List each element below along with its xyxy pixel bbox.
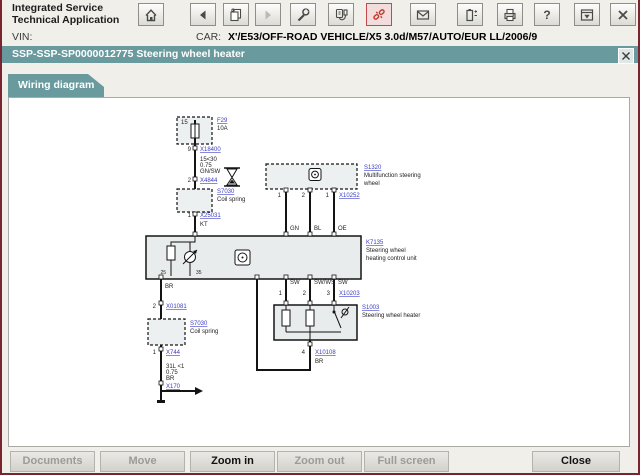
battery-icon: [462, 7, 478, 23]
workshop-tools-button[interactable]: [290, 3, 316, 26]
diagnostic-connection-button[interactable]: [328, 3, 354, 26]
zoom-out-button: Zoom out: [277, 451, 362, 472]
wire-color: GN/SW: [200, 169, 221, 175]
help-button[interactable]: ?: [534, 3, 560, 26]
pin-number: 4: [302, 350, 306, 356]
connection-broken-button[interactable]: [366, 3, 392, 26]
documents-copy-button[interactable]: [223, 3, 249, 26]
mail-icon: [415, 7, 431, 23]
control-unit-label-2: heating control unit: [366, 256, 417, 262]
heater-label: Steering wheel heater: [362, 313, 420, 319]
heater-box: [274, 305, 357, 340]
diagnostic-plug-icon: [333, 7, 349, 23]
mail-button[interactable]: [410, 3, 436, 26]
mfl-label-2: wheel: [363, 181, 380, 187]
vin-label: VIN:: [12, 31, 32, 43]
pin-number: 2: [153, 304, 157, 310]
document-close-button[interactable]: [618, 48, 634, 64]
pin-number: 1: [153, 350, 157, 356]
coil-spring-upper-link[interactable]: S7030: [217, 189, 235, 195]
mfl-link[interactable]: S1320: [364, 165, 382, 171]
wire-label: OE: [338, 226, 347, 232]
pin-number: 1: [278, 193, 282, 199]
connector-link[interactable]: X744: [166, 350, 181, 356]
app-title-line2: Technical Application: [12, 14, 119, 26]
coil-spring-lower-label: Coil spring: [190, 329, 218, 335]
steering-wheel-icon: [309, 169, 321, 181]
pin-number: 2: [188, 178, 192, 184]
car-label: CAR:: [196, 31, 221, 43]
forward-button[interactable]: [255, 3, 281, 26]
close-icon: [621, 51, 631, 61]
fuse-pin-top: 15: [181, 120, 188, 126]
connector-link[interactable]: X10108: [315, 350, 336, 356]
connector-link[interactable]: X4844: [200, 178, 218, 184]
close-app-button[interactable]: [610, 3, 636, 26]
coil-spring-lower-box: [148, 319, 185, 345]
wire-label: BR: [315, 359, 324, 365]
internal-pin: 25: [160, 270, 166, 276]
app-title-line1: Integrated Service: [12, 2, 103, 14]
control-unit-label-1: Steering wheel: [366, 248, 406, 254]
tab-label: Wiring diagram: [18, 79, 94, 91]
close-button[interactable]: Close: [532, 451, 620, 472]
mfl-label-1: Multifunction steering: [364, 173, 421, 179]
wire-label: SW/WS: [314, 280, 335, 286]
close-icon: [615, 7, 631, 23]
home-button[interactable]: [138, 3, 164, 26]
coil-spring-lower-link[interactable]: S7030: [190, 321, 208, 327]
zoom-in-button[interactable]: Zoom in: [190, 451, 275, 472]
connector-link[interactable]: X25031: [200, 213, 221, 219]
battery-status-button[interactable]: [457, 3, 483, 26]
connector-link[interactable]: X01081: [166, 304, 187, 310]
hourglass-cursor: [224, 168, 240, 186]
app-title: Integrated ServiceTechnical Application: [12, 3, 119, 26]
wire-label: SW: [338, 280, 348, 286]
connector-link[interactable]: X10252: [339, 193, 360, 199]
fuse-symbol: [191, 124, 199, 138]
tab-wiring-diagram[interactable]: Wiring diagram: [8, 74, 104, 97]
documents-button: Documents: [10, 451, 95, 472]
coil-spring-upper-box: [177, 189, 212, 212]
wire-label: SW: [290, 280, 300, 286]
full-screen-button: Full screen: [364, 451, 449, 472]
back-icon: [195, 7, 211, 23]
window-down-icon: [579, 7, 595, 23]
pin-number: 3: [327, 291, 331, 297]
pin-number: 1: [326, 193, 330, 199]
wrench-icon: [295, 7, 311, 23]
ground-connector-link[interactable]: X170: [166, 384, 181, 390]
connector-link[interactable]: X10203: [339, 291, 360, 297]
connector-link[interactable]: X18400: [200, 147, 221, 153]
pin-number: 2: [302, 193, 306, 199]
control-unit-box: [146, 236, 361, 279]
coil-spring-upper-label: Coil spring: [217, 197, 245, 203]
heater-link[interactable]: S1003: [362, 305, 380, 311]
wire-label: KT: [200, 222, 208, 228]
move-button: Move: [100, 451, 185, 472]
help-icon: ?: [543, 8, 550, 22]
broken-connection-icon: [371, 7, 387, 23]
document-title-bar: SSP-SSP-SP0000012775 Steering wheel heat…: [2, 46, 638, 63]
pin-number: 2: [303, 291, 307, 297]
internal-pin: 35: [196, 270, 202, 276]
control-unit-link[interactable]: K7135: [366, 240, 384, 246]
print-button[interactable]: [497, 3, 523, 26]
copy-documents-icon: [228, 7, 244, 23]
fuse-pin-out: 9: [188, 147, 192, 153]
wire-label: BR: [165, 284, 174, 290]
pin-number: 1: [188, 213, 192, 219]
car-value: X'/E53/OFF-ROAD VEHICLE/X5 3.0d/M57/AUTO…: [228, 31, 537, 43]
wire-color: BR: [166, 376, 175, 382]
fuse-code-link[interactable]: F29: [217, 118, 228, 124]
document-title: SSP-SSP-SP0000012775 Steering wheel heat…: [12, 48, 245, 60]
diagram-panel: 15 F29 10A 9 X18400 15<30 0.75 GN/SW 2 X…: [8, 97, 630, 447]
forward-icon: [260, 7, 276, 23]
back-button[interactable]: [190, 3, 216, 26]
minimize-window-button[interactable]: [574, 3, 600, 26]
printer-icon: [502, 7, 518, 23]
pin-number: 1: [279, 291, 283, 297]
wire-label: GN: [290, 226, 299, 232]
home-icon: [143, 7, 159, 23]
wiring-diagram: 15 F29 10A 9 X18400 15<30 0.75 GN/SW 2 X…: [9, 98, 629, 446]
fuse-rating: 10A: [217, 126, 228, 132]
wire-label: BL: [314, 226, 322, 232]
